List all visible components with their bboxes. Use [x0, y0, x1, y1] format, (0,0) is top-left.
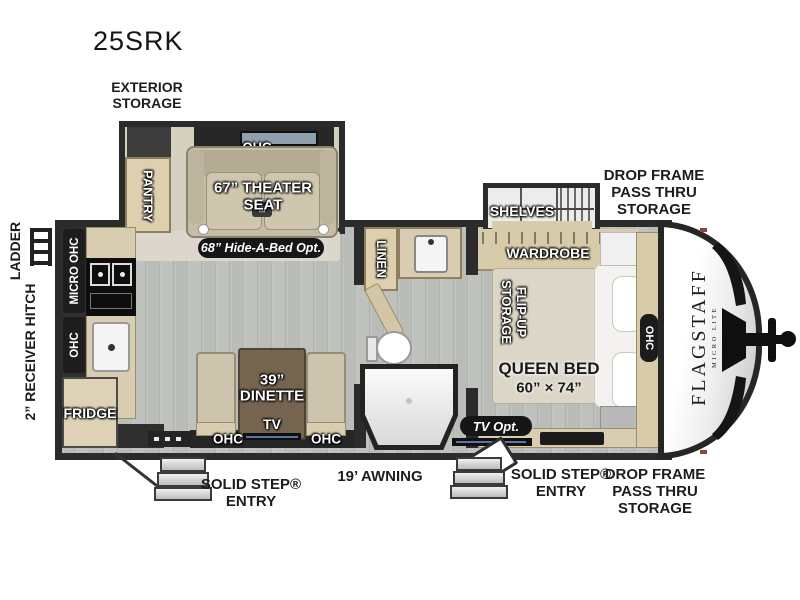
- receiver-hitch-label: 2” RECEIVER HITCH: [23, 284, 39, 421]
- bedroom-ohc-label: OHC: [643, 326, 655, 350]
- wardrobe-label: WARDROBE: [506, 245, 589, 261]
- theater-armrest-right: [320, 150, 336, 224]
- exterior-storage-label: EXTERIOR STORAGE: [92, 80, 202, 111]
- stove-burner-left: [90, 263, 110, 286]
- floorplan-diagram: 25SRK EXTERIOR STORAGE PANTRY OHC ⊞ 67” …: [0, 0, 800, 600]
- theater-seat-label-line1: 67” THEATER: [214, 180, 312, 197]
- page-title: 25SRK: [93, 26, 184, 57]
- hitch-icon: [722, 298, 798, 382]
- shower-pan: [365, 369, 453, 445]
- ladder-label: LADDER: [8, 222, 24, 280]
- bed-corner-cabinet-top: [600, 232, 640, 266]
- pantry-label: PANTRY: [141, 170, 156, 222]
- bath-faucet: [428, 239, 434, 245]
- bedroom-tablet: [540, 432, 604, 445]
- theater-cupholder-right: [318, 224, 329, 235]
- awning-label: 19’ AWNING: [328, 469, 432, 486]
- kitchen-ohc-label: OHC: [69, 332, 81, 358]
- solid-step-entry-label-left: SOLID STEP® ENTRY: [195, 477, 307, 511]
- linen-label: LINEN: [374, 240, 388, 278]
- tv-option-label: TV Opt.: [460, 416, 532, 436]
- dinette-ohc-left-label: OHC: [213, 432, 243, 447]
- shelves-label: SHELVES: [490, 203, 554, 219]
- entry-step-well-dashes: [154, 437, 186, 441]
- drop-frame-storage-label-top: DROP FRAME PASS THRU STORAGE: [594, 168, 714, 218]
- queen-bed-size-label: 60” × 74”: [516, 380, 581, 397]
- theater-seat-label-line2: SEAT: [244, 197, 283, 214]
- dinette-tv-screen-line: [246, 436, 298, 438]
- flip-up-storage-label: FLIP-UP STORAGE: [498, 280, 528, 344]
- right-entry-step-3: [450, 485, 508, 499]
- stove-burner-right: [112, 263, 132, 286]
- theater-cupholder-left: [198, 224, 209, 235]
- dinette-label-line1: 39”: [260, 372, 284, 389]
- right-entry-step-1: [456, 457, 502, 471]
- dinette-ohc-right-label: OHC: [311, 432, 341, 447]
- dinette-tv-label: TV: [263, 416, 281, 432]
- brand-logo: FLAGSTAFF MICRO LITE: [688, 268, 718, 406]
- fridge-label: FRIDGE: [64, 405, 117, 421]
- toilet-bowl: [376, 331, 412, 365]
- micro-ohc-label: MICRO OHC: [69, 237, 81, 304]
- theater-armrest-left: [188, 150, 204, 224]
- stove-oven-door: [90, 293, 132, 309]
- hide-a-bed-option-label: 68” Hide-A-Bed Opt.: [198, 238, 324, 258]
- slide-storage-box: [127, 127, 171, 157]
- shower-drain: [406, 398, 412, 404]
- right-entry-step-2: [453, 471, 505, 485]
- dinette-label-line2: DINETTE: [240, 388, 304, 405]
- ladder-icon: [30, 228, 52, 266]
- left-entry-step-1: [160, 457, 206, 472]
- bath-wall-right-top: [466, 227, 478, 275]
- drop-frame-storage-label-bottom: DROP FRAME PASS THRU STORAGE: [597, 467, 713, 517]
- kitchen-faucet: [108, 344, 115, 351]
- queen-bed-label: QUEEN BED: [498, 359, 599, 379]
